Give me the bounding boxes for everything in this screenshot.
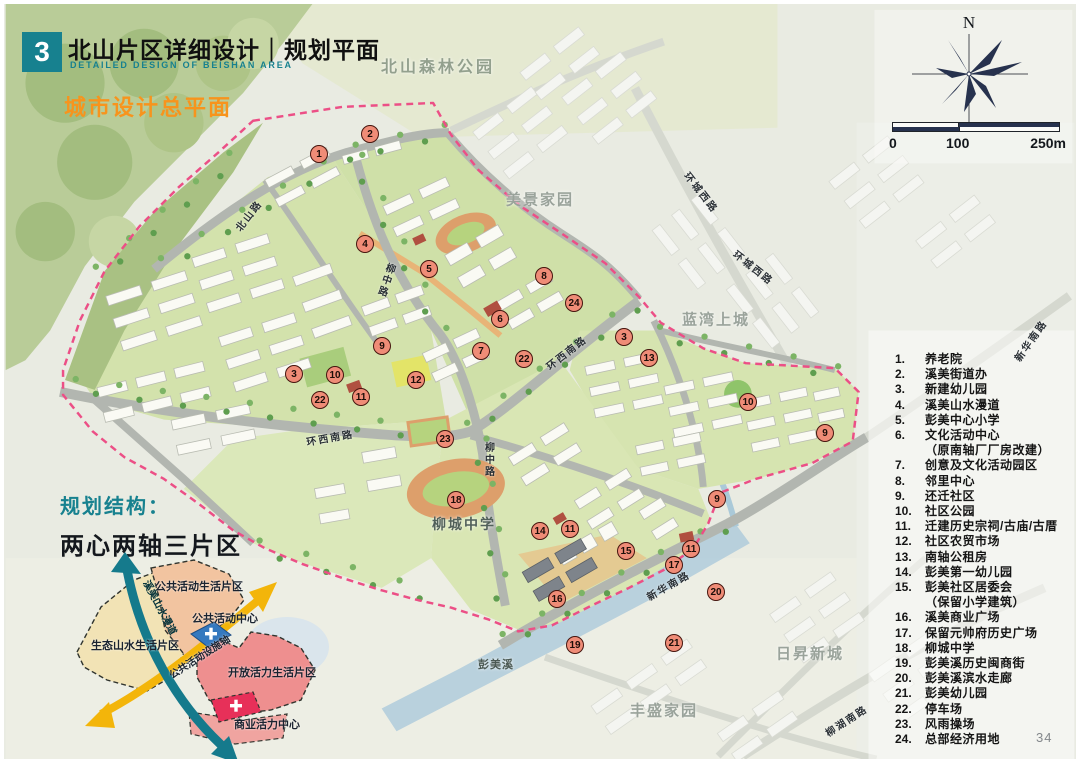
legend-item-label: 彭美第一幼儿园 (925, 565, 1076, 580)
compass-rose: N (894, 10, 1054, 135)
legend-item: 16.溪美商业广场 (895, 610, 1076, 625)
map-marker-8: 8 (535, 267, 553, 285)
map-marker-9: 9 (373, 337, 391, 355)
legend-item-number: 9. (895, 489, 925, 504)
legend-item-number: 20. (895, 671, 925, 686)
map-marker-15: 15 (617, 542, 635, 560)
legend-item-number: 18. (895, 641, 925, 656)
section-title: 城市设计总平面 (64, 90, 232, 122)
legend-item: 14.彭美第一幼儿园 (895, 565, 1076, 580)
legend-item-number: 1. (895, 352, 925, 367)
structure-heading: 规划结构： (60, 490, 170, 519)
legend-item: 20.彭美溪滨水走廊 (895, 671, 1076, 686)
compass-north-label: N (963, 13, 975, 32)
zone-public-label: 公共活动生活片区 (155, 578, 243, 594)
legend-item: 13.南轴公租房 (895, 550, 1076, 565)
legend-item-label: 邻里中心 (925, 474, 1076, 489)
legend-item-number: 11. (895, 519, 925, 534)
legend-item-label: 停车场 (925, 702, 1076, 717)
area-label: 彭美溪 (478, 656, 514, 672)
road-label: 柳中路 (481, 442, 496, 478)
map-marker-9: 9 (708, 490, 726, 508)
map-marker-20: 20 (707, 583, 725, 601)
legend-item: 8.邻里中心 (895, 474, 1076, 489)
legend-item-label: 彭美溪历史闽商街 (925, 656, 1076, 671)
legend-item-label: （原南轴厂厂房改建） (925, 443, 1076, 458)
area-label: 日昇新城 (776, 643, 844, 664)
zone-eco-label: 生态山水生活片区 (91, 637, 179, 653)
legend-item: 7.创意及文化活动园区 (895, 458, 1076, 473)
map-marker-7: 7 (472, 342, 490, 360)
legend-item-label: 保留元帅府历史广场 (925, 626, 1076, 641)
map-marker-11: 11 (561, 520, 579, 538)
map-marker-4: 4 (356, 235, 374, 253)
legend-item-label: 风雨操场 (925, 717, 1076, 732)
legend-item-number: 8. (895, 474, 925, 489)
map-marker-14: 14 (531, 522, 549, 540)
legend-item-number: 4. (895, 398, 925, 413)
legend-item-label: 溪美商业广场 (925, 610, 1076, 625)
legend-item-label: 新建幼儿园 (925, 382, 1076, 397)
area-label: 蓝湾上城 (682, 309, 750, 330)
map-marker-12: 12 (407, 371, 425, 389)
legend-item: 6.文化活动中心 (895, 428, 1076, 443)
area-label: 美景家园 (506, 189, 574, 210)
map-marker-3: 3 (285, 365, 303, 383)
map-marker-19: 19 (566, 636, 584, 654)
legend-item-label: 总部经济用地 (925, 732, 1076, 747)
legend-item-number: 7. (895, 458, 925, 473)
map-marker-16: 16 (548, 590, 566, 608)
legend-item-label: 文化活动中心 (925, 428, 1076, 443)
legend-item-number: 6. (895, 428, 925, 443)
legend-item-number: 3. (895, 382, 925, 397)
legend-item-number: 24. (895, 732, 925, 747)
legend-item: 15.彭美社区居委会 (895, 580, 1076, 595)
legend-item: 2.溪美街道办 (895, 367, 1076, 382)
map-marker-13: 13 (640, 349, 658, 367)
map-marker-22: 22 (311, 391, 329, 409)
legend-item-number: 2. (895, 367, 925, 382)
legend-item-number: 10. (895, 504, 925, 519)
center-public-label: 公共活动中心 (192, 610, 258, 626)
legend-item: 12.社区农贸市场 (895, 534, 1076, 549)
map-marker-1: 1 (310, 145, 328, 163)
scale-tick-250: 250m (1030, 135, 1066, 151)
map-marker-22: 22 (515, 350, 533, 368)
scanned-plan-page: { "header": { "chapter_number": "3", "ti… (0, 0, 1080, 763)
compass-blades (936, 40, 1022, 112)
legend-item-label: 养老院 (925, 352, 1076, 367)
legend-item: 9.还迁社区 (895, 489, 1076, 504)
map-marker-6: 6 (491, 310, 509, 328)
map-marker-2: 2 (361, 125, 379, 143)
legend-item-number: 21. (895, 686, 925, 701)
legend-item: 1.养老院 (895, 352, 1076, 367)
legend-item-number: 19. (895, 656, 925, 671)
legend-item: 15.（保留小学建筑） (895, 595, 1076, 610)
map-marker-24: 24 (565, 294, 583, 312)
legend-item: 6.（原南轴厂厂房改建） (895, 443, 1076, 458)
area-label: 北山森林公园 (381, 53, 495, 77)
area-label: 柳城中学 (432, 514, 496, 534)
legend-item-label: 南轴公租房 (925, 550, 1076, 565)
legend-item: 10.社区公园 (895, 504, 1076, 519)
legend-item-label: 彭美幼儿园 (925, 686, 1076, 701)
legend-item: 22.停车场 (895, 702, 1076, 717)
scale-tick-0: 0 (889, 135, 897, 151)
legend-item: 4.溪美山水漫道 (895, 398, 1076, 413)
scale-bar: 0 100 250m (892, 122, 1060, 153)
legend-item-number: 12. (895, 534, 925, 549)
legend-item-number: 14. (895, 565, 925, 580)
page-number: 34 (1036, 730, 1052, 745)
legend-item-label: 彭美溪滨水走廊 (925, 671, 1076, 686)
legend-item: 17.保留元帅府历史广场 (895, 626, 1076, 641)
legend-item-label: 还迁社区 (925, 489, 1076, 504)
legend-item-number: 13. (895, 550, 925, 565)
legend-item-label: 柳城中学 (925, 641, 1076, 656)
legend-item: 18.柳城中学 (895, 641, 1076, 656)
legend-item: 21.彭美幼儿园 (895, 686, 1076, 701)
legend-item-label: 彭美社区居委会 (925, 580, 1076, 595)
structure-diagram: 公共活动生活片区 公共活动中心 生态山水生活片区 开放活力生活片区 商业活力中心… (39, 552, 339, 759)
legend-item: 11.迁建历史宗祠/古庙/古厝 (895, 519, 1076, 534)
legend-list: 1.养老院2.溪美街道办3.新建幼儿园4.溪美山水漫道5.彭美中心小学6.文化活… (895, 352, 1076, 747)
map-marker-17: 17 (665, 556, 683, 574)
legend-item-label: （保留小学建筑） (925, 595, 1076, 610)
legend-item-number: 16. (895, 610, 925, 625)
legend-item: 19.彭美溪历史闽商街 (895, 656, 1076, 671)
legend-item: 3.新建幼儿园 (895, 382, 1076, 397)
legend-item-label: 社区农贸市场 (925, 534, 1076, 549)
zone-vitality-label: 开放活力生活片区 (228, 664, 316, 680)
map-marker-10: 10 (739, 393, 757, 411)
map-marker-10: 10 (326, 366, 344, 384)
map-marker-9: 9 (816, 424, 834, 442)
legend-item-label: 彭美中心小学 (925, 413, 1076, 428)
map-marker-5: 5 (420, 260, 438, 278)
map-marker-3: 3 (615, 328, 633, 346)
chapter-number-box: 3 (22, 32, 62, 72)
plan-sheet: 北山森林公园美景家园蓝湾上城日昇新城丰盛家园柳城中学彭美溪 北山路柳中路环西南路… (4, 4, 1076, 759)
legend-item-number: 5. (895, 413, 925, 428)
legend-item: 5.彭美中心小学 (895, 413, 1076, 428)
map-marker-21: 21 (665, 634, 683, 652)
center-commercial-label: 商业活力中心 (234, 716, 300, 732)
map-marker-11: 11 (352, 388, 370, 406)
legend-item-label: 溪美街道办 (925, 367, 1076, 382)
legend-item-label: 迁建历史宗祠/古庙/古厝 (925, 519, 1076, 534)
legend-item-number: 15. (895, 580, 925, 595)
scale-tick-100: 100 (946, 135, 969, 151)
legend-item-number: 22. (895, 702, 925, 717)
legend-item-number: 23. (895, 717, 925, 732)
map-marker-23: 23 (436, 430, 454, 448)
legend-item-number: 17. (895, 626, 925, 641)
map-marker-18: 18 (447, 491, 465, 509)
page-title-english: DETAILED DESIGN OF BEISHAN AREA (70, 60, 293, 70)
legend-item-label: 创意及文化活动园区 (925, 458, 1076, 473)
legend-item-label: 社区公园 (925, 504, 1076, 519)
map-marker-11: 11 (682, 540, 700, 558)
area-label: 丰盛家园 (630, 700, 698, 721)
legend-item-label: 溪美山水漫道 (925, 398, 1076, 413)
